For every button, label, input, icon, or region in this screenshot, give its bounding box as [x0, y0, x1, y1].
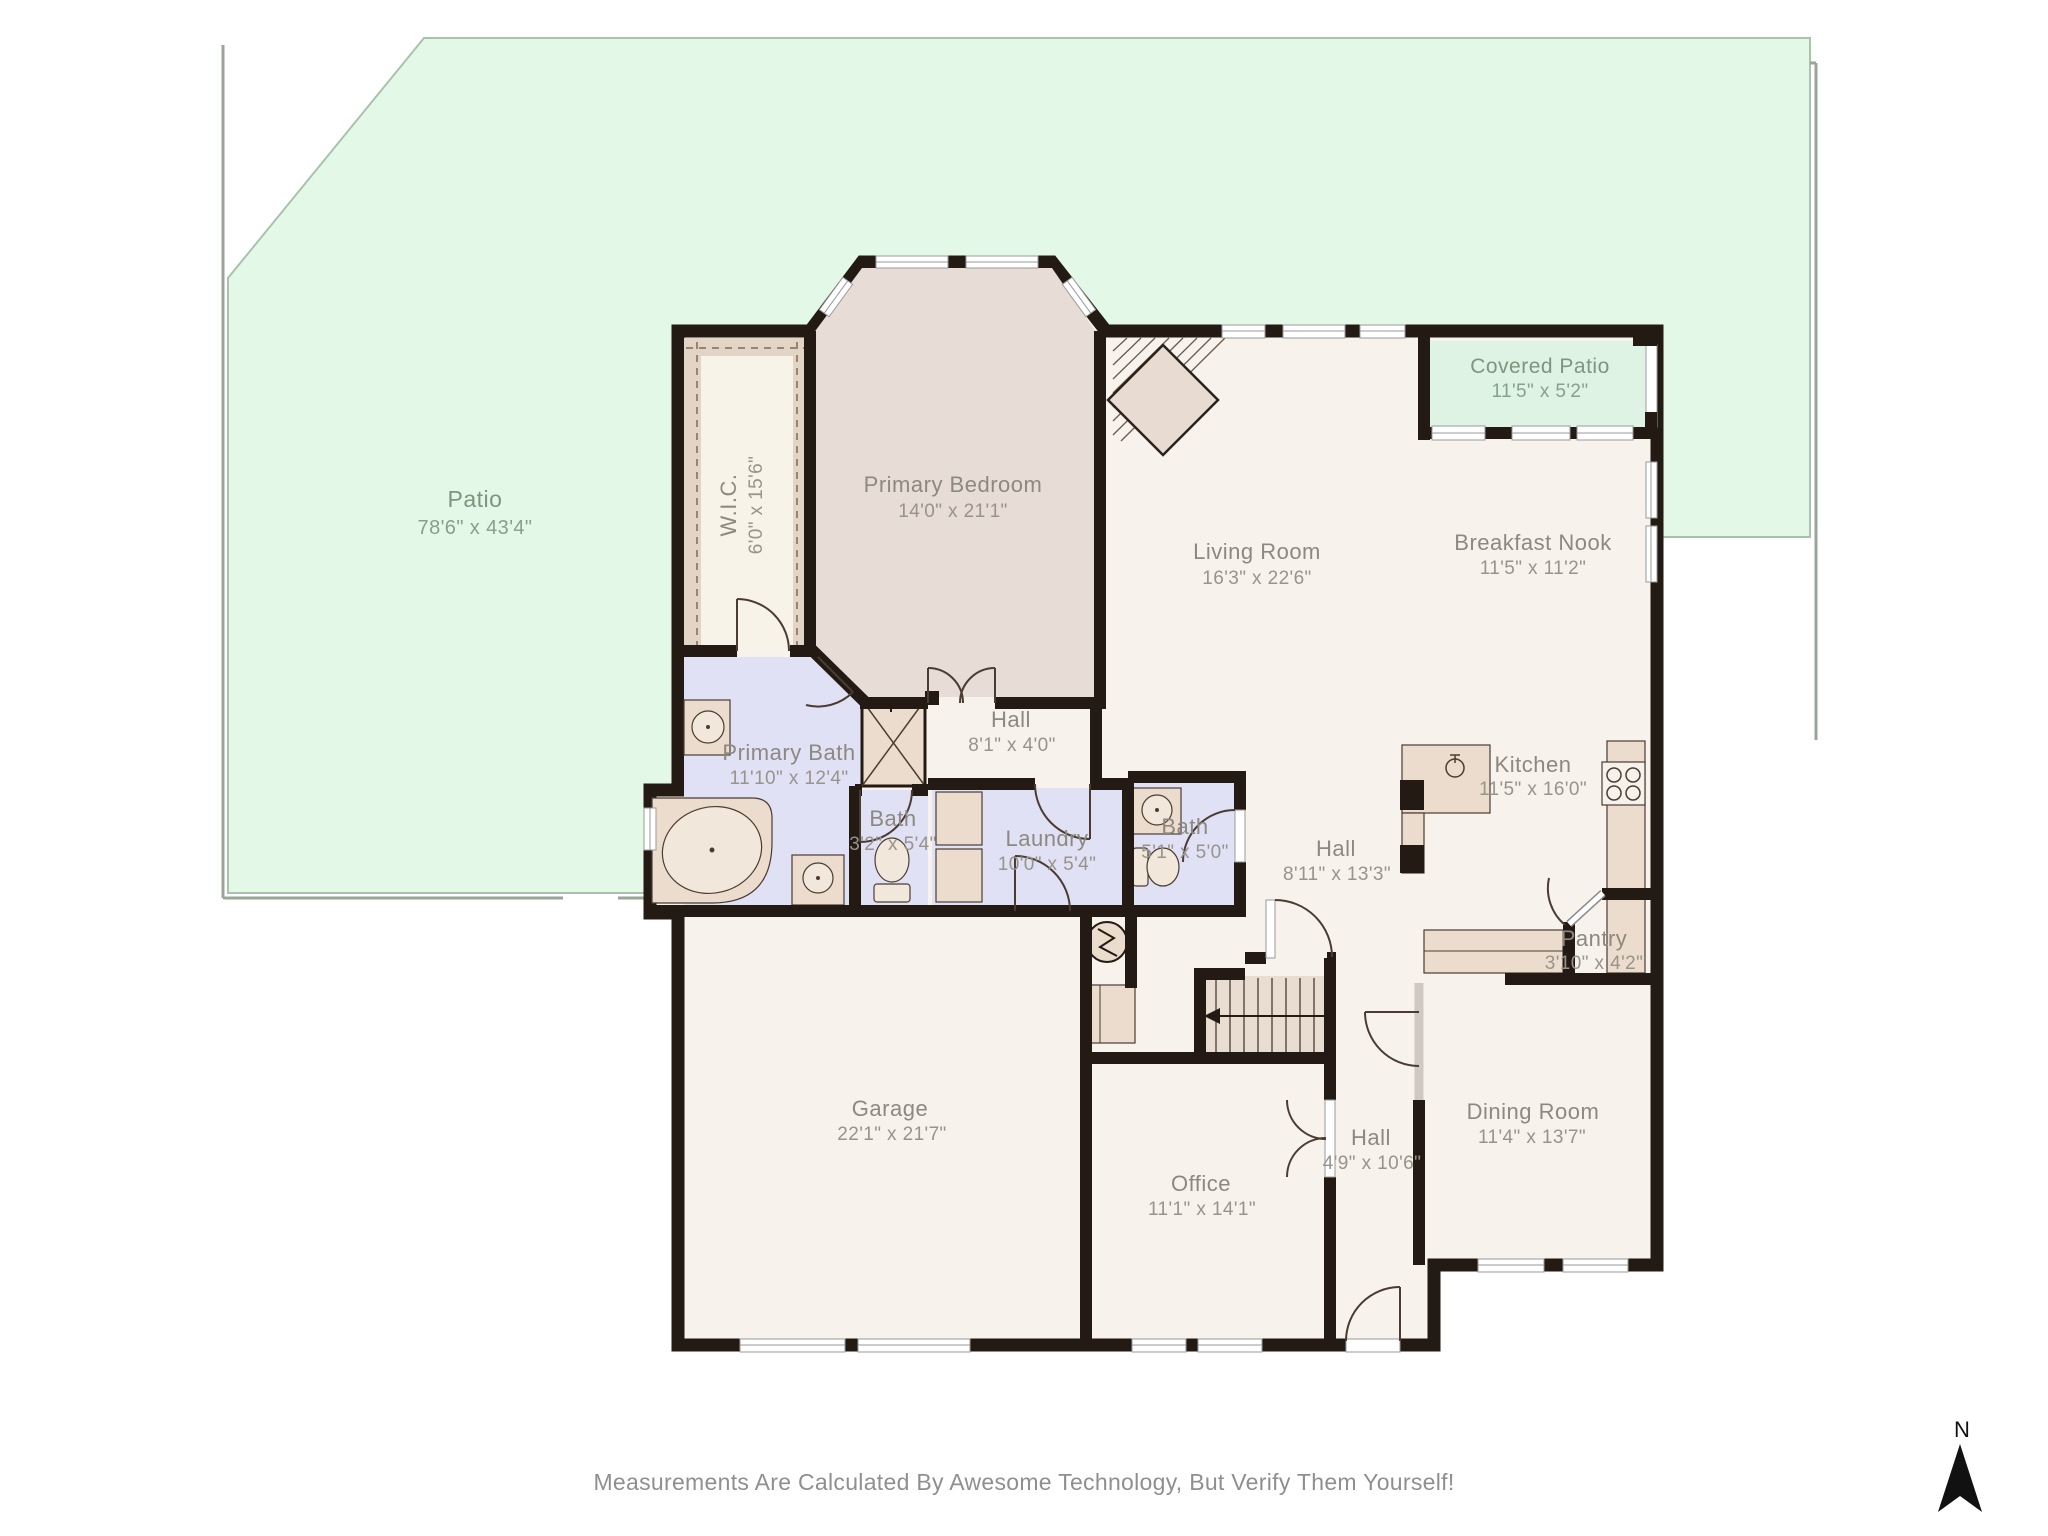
room-label-office: Office — [1171, 1171, 1231, 1196]
room-dims-dining-room: 11'4" x 13'7" — [1478, 1127, 1586, 1148]
room-label-wic: W.I.C. — [716, 474, 741, 537]
north-arrow-icon — [1938, 1444, 1982, 1512]
disclaimer-text: Measurements Are Calculated By Awesome T… — [593, 1469, 1454, 1495]
room-label-patio: Patio — [448, 486, 503, 512]
room-label-kitchen: Kitchen — [1495, 752, 1572, 777]
room-dims-office: 11'1" x 14'1" — [1148, 1199, 1256, 1220]
room-dims-garage: 22'1" x 21'7" — [837, 1124, 946, 1145]
room-dims-hall-1: 8'1" x 4'0" — [968, 735, 1055, 756]
room-label-breakfast-nook: Breakfast Nook — [1454, 530, 1612, 555]
room-dims-breakfast-nook: 11'5" x 11'2" — [1480, 558, 1587, 579]
room-label-covered-patio: Covered Patio — [1470, 355, 1610, 378]
room-dims-bath-2: 5'1" x 5'0" — [1141, 842, 1228, 863]
washer — [936, 792, 982, 845]
room-dims-wic: 6'0" x 15'6" — [746, 456, 767, 554]
room-label-hall-3: Hall — [1351, 1125, 1391, 1150]
room-dims-primary-bath: 11'10" x 12'4" — [730, 768, 849, 789]
stove — [1602, 762, 1645, 805]
room-dims-laundry: 10'0" x 5'4" — [998, 854, 1096, 875]
room-label-dining-room: Dining Room — [1467, 1099, 1600, 1124]
electrical-panel-icon — [1087, 922, 1127, 962]
room-dims-kitchen: 11'5" x 16'0" — [1479, 779, 1587, 800]
room-label-laundry: Laundry — [1005, 826, 1088, 851]
room-label-pantry: Pantry — [1561, 926, 1628, 951]
room-label-living-room: Living Room — [1193, 539, 1321, 564]
dryer — [936, 849, 982, 902]
floor-plan-canvas: Patio 78'6" x 43'4" Covered Patio 11'5" … — [0, 0, 2048, 1536]
floor-plan-page: Patio 78'6" x 43'4" Covered Patio 11'5" … — [0, 0, 2048, 1536]
room-label-hall-2: Hall — [1316, 836, 1356, 861]
room-dims-patio: 78'6" x 43'4" — [418, 517, 533, 539]
shower — [862, 700, 925, 786]
room-label-garage: Garage — [852, 1096, 928, 1121]
room-label-primary-bedroom: Primary Bedroom — [864, 472, 1043, 497]
compass: N — [1938, 1417, 1982, 1512]
stairs — [1202, 976, 1326, 1056]
room-dims-bath-1: 3'2" x 5'4" — [849, 834, 936, 855]
room-dims-pantry: 3'10" x 4'2" — [1545, 953, 1643, 974]
room-dims-primary-bedroom: 14'0" x 21'1" — [898, 501, 1007, 522]
water-heater — [1085, 985, 1135, 1043]
room-label-bath-2: Bath — [1161, 814, 1208, 839]
room-label-hall-1: Hall — [991, 707, 1031, 732]
room-dims-covered-patio: 11'5" x 5'2" — [1491, 381, 1588, 402]
room-dims-hall-3: 4'9" x 10'6" — [1323, 1153, 1421, 1174]
room-label-primary-bath: Primary Bath — [722, 740, 855, 765]
north-label: N — [1954, 1417, 1970, 1442]
room-label-bath-1: Bath — [869, 806, 916, 831]
room-dims-hall-2: 8'11" x 13'3" — [1283, 864, 1391, 885]
room-dims-living-room: 16'3" x 22'6" — [1202, 568, 1311, 589]
